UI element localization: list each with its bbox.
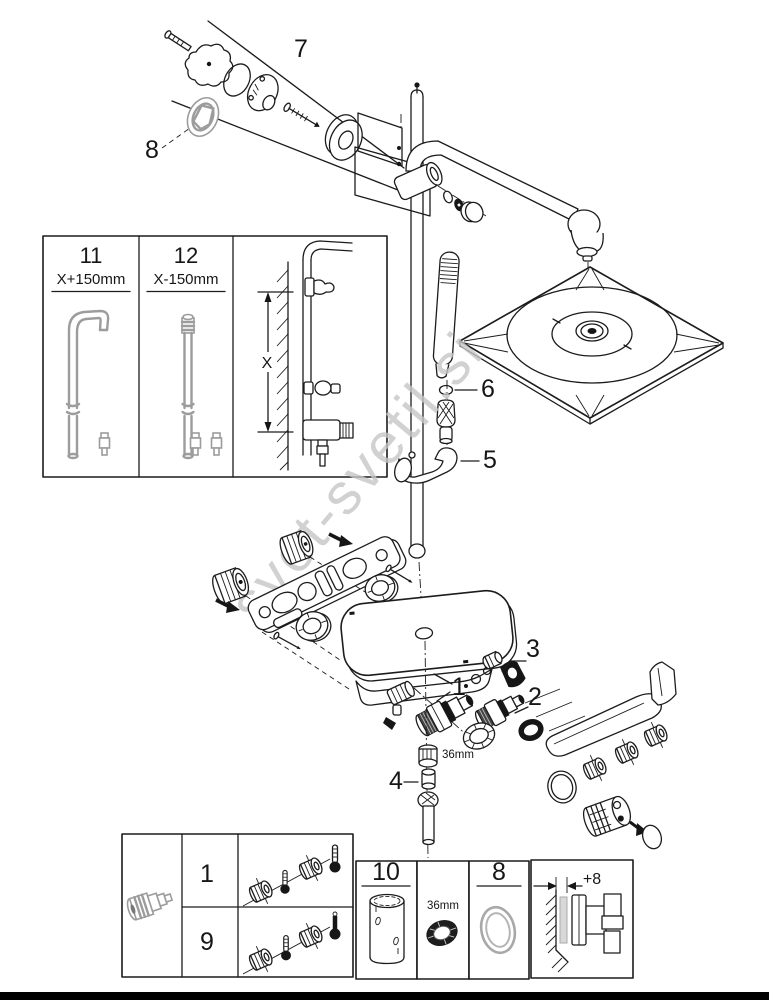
height-dimension-x: X — [262, 355, 273, 372]
part8-seal-ring — [182, 93, 225, 141]
knob-small — [579, 751, 610, 785]
inset-col1-number: 11 — [80, 243, 103, 268]
inset-box-pipe-lengths: 11 X+150mm 12 X-150mm — [43, 236, 387, 477]
cap-oval — [639, 823, 664, 852]
cell-10-number: 10 — [372, 858, 400, 886]
cover-knobs-assembly — [525, 662, 676, 851]
wall-union-exploded-view — [162, 21, 408, 194]
callout-7: 7 — [294, 35, 308, 63]
diagram-page: 11 X+150mm 12 X-150mm — [0, 0, 769, 1000]
callout-8: 8 — [145, 136, 159, 164]
o-ring — [544, 768, 579, 806]
cell-36mm-label: 36mm — [427, 900, 459, 912]
screw-arrow — [383, 717, 396, 730]
callout-6: 6 — [481, 375, 495, 403]
inset-col2-dimension: X-150mm — [153, 271, 218, 288]
mounting-plate — [185, 44, 233, 86]
bottom-left-parts-table: 1 9 — [122, 834, 353, 977]
rain-shower-head — [460, 267, 723, 424]
callout-2: 2 — [528, 683, 542, 711]
inset-col2-number: 12 — [174, 243, 198, 268]
screw-long — [283, 102, 322, 131]
wall-flange — [242, 69, 286, 116]
exploded-parts-diagram: 11 X+150mm 12 X-150mm — [0, 0, 769, 1000]
part7-escutcheon — [318, 109, 370, 165]
bottom-black-bar — [0, 992, 769, 1000]
callout-4: 4 — [389, 767, 403, 795]
washer — [442, 190, 454, 204]
seal-ring-black — [519, 719, 543, 741]
callout-3: 3 — [526, 635, 540, 663]
label-36mm-center: 36mm — [442, 749, 474, 761]
screw-small — [164, 30, 192, 52]
wall-offset-label: +8 — [583, 871, 601, 888]
part4-check-valve-stack — [418, 745, 438, 845]
knob-small — [640, 718, 671, 752]
bottom-cells: 10 36mm 8 — [356, 858, 633, 979]
callout-5: 5 — [483, 446, 497, 474]
handle-knob-exploded — [580, 794, 633, 838]
cell-8-number: 8 — [492, 858, 506, 886]
table-row1-number: 1 — [200, 860, 214, 888]
knob-small — [611, 735, 642, 769]
table-row2-number: 9 — [200, 928, 214, 956]
callout-1: 1 — [452, 673, 466, 701]
inset-col1-dimension: X+150mm — [57, 271, 126, 288]
